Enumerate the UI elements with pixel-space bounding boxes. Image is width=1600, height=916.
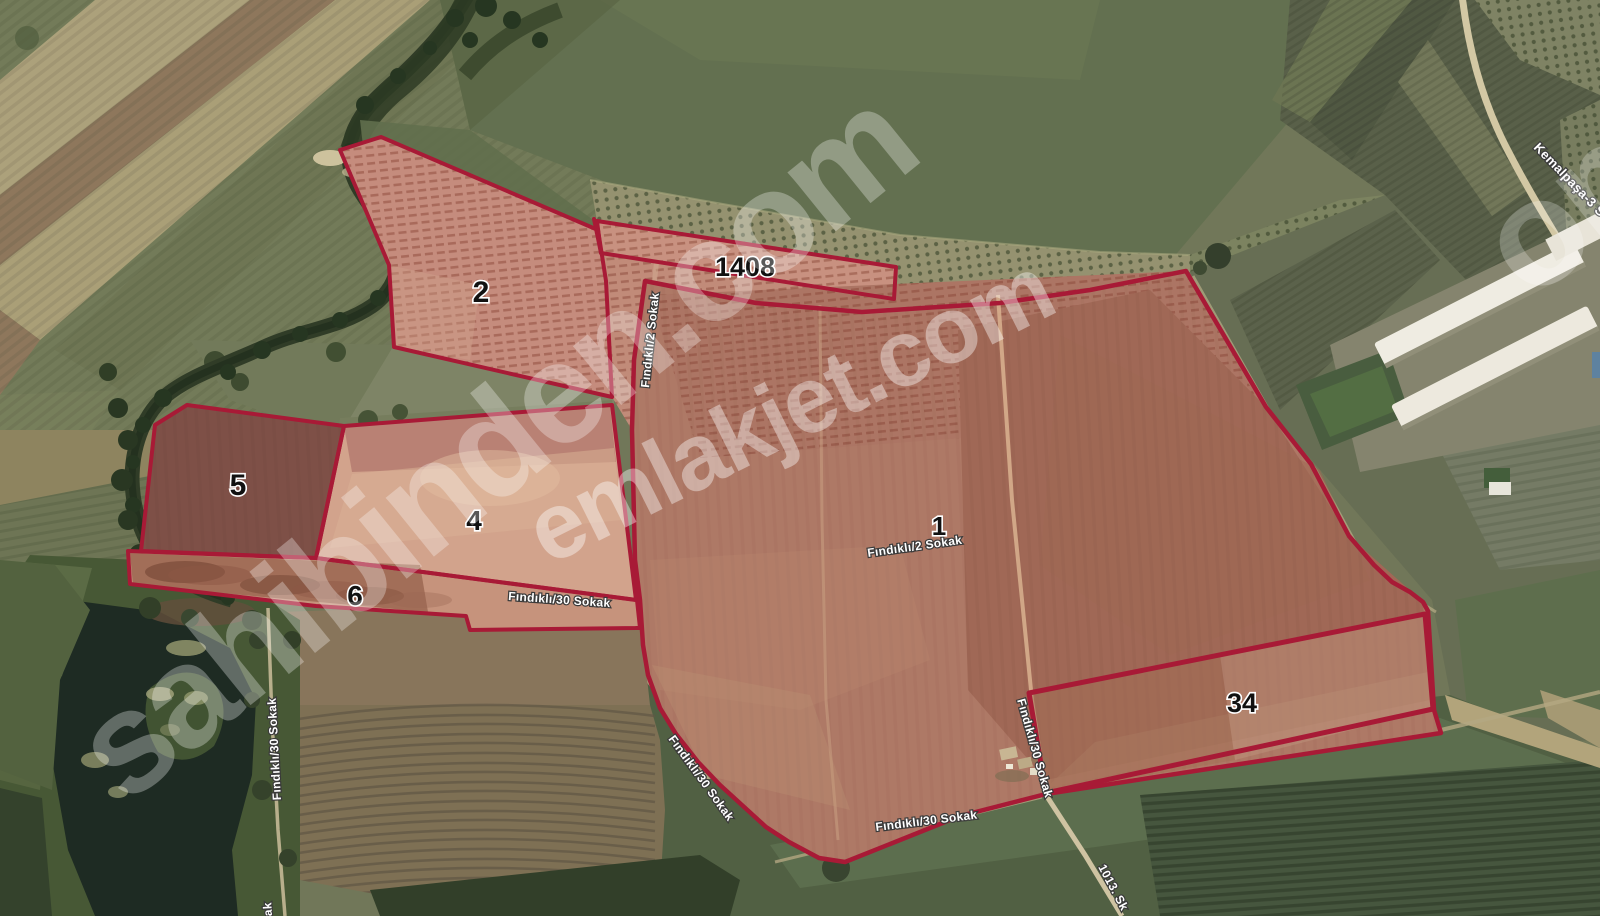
svg-text:1: 1 bbox=[932, 511, 946, 541]
svg-text:5: 5 bbox=[230, 469, 247, 502]
svg-text:34: 34 bbox=[1227, 688, 1257, 718]
svg-text:2: 2 bbox=[473, 276, 490, 309]
svg-text:ak: ak bbox=[260, 902, 275, 916]
